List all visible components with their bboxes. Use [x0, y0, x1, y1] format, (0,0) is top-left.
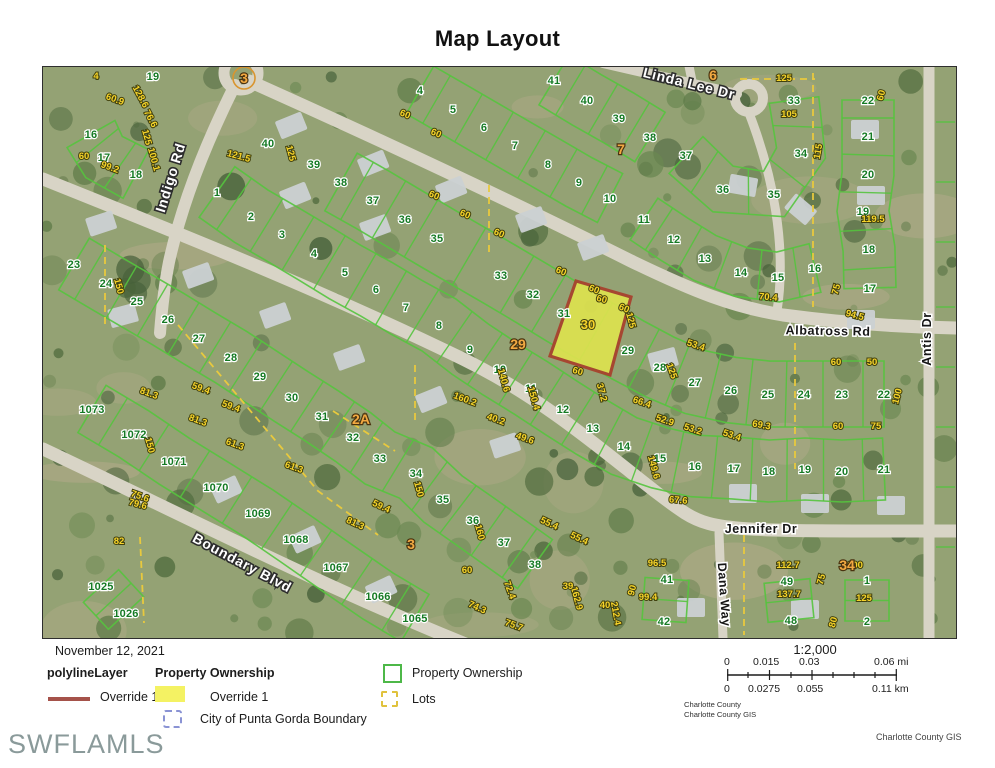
svg-text:67.6: 67.6: [669, 494, 688, 507]
scale-km-0: 0: [724, 683, 730, 695]
svg-text:35: 35: [768, 189, 781, 201]
credit-right: Charlotte County GIS: [876, 732, 962, 742]
svg-text:50: 50: [867, 357, 878, 368]
svg-text:11: 11: [638, 214, 650, 226]
svg-text:16: 16: [85, 129, 98, 141]
svg-text:2: 2: [248, 211, 254, 223]
svg-text:7: 7: [617, 141, 625, 157]
svg-text:30: 30: [286, 392, 299, 404]
svg-text:38: 38: [644, 132, 657, 144]
scale-ratio: 1:2,000: [770, 642, 860, 657]
svg-text:23: 23: [68, 259, 81, 271]
svg-text:22: 22: [862, 95, 875, 107]
svg-text:3: 3: [240, 70, 248, 86]
svg-text:34: 34: [839, 557, 855, 573]
credit-line-1: Charlotte County: [684, 700, 756, 710]
svg-text:33: 33: [788, 95, 801, 107]
svg-text:25: 25: [762, 389, 775, 401]
svg-text:12: 12: [557, 404, 570, 416]
legend-label-ownership2: Property Ownership: [412, 666, 522, 680]
svg-text:70.4: 70.4: [759, 291, 779, 304]
svg-text:2: 2: [864, 616, 870, 628]
svg-text:18: 18: [863, 244, 876, 256]
svg-text:26: 26: [725, 385, 738, 397]
legend-label-override1-line: Override 1: [100, 690, 158, 704]
svg-text:7: 7: [403, 302, 409, 314]
page-title: Map Layout: [0, 26, 995, 52]
svg-text:8: 8: [436, 320, 442, 332]
svg-text:39: 39: [563, 581, 574, 592]
svg-text:41: 41: [661, 574, 674, 586]
svg-text:1: 1: [214, 187, 220, 199]
svg-text:12: 12: [668, 234, 681, 246]
svg-text:8: 8: [545, 159, 551, 171]
svg-text:Albatross Rd: Albatross Rd: [785, 323, 870, 338]
svg-text:49: 49: [781, 576, 794, 588]
svg-text:137.7: 137.7: [777, 589, 801, 600]
svg-text:37: 37: [680, 150, 693, 162]
svg-text:40: 40: [600, 600, 611, 611]
svg-text:13: 13: [699, 253, 712, 265]
svg-text:6: 6: [373, 284, 379, 296]
svg-text:96.5: 96.5: [648, 558, 667, 569]
svg-text:42: 42: [658, 616, 671, 628]
svg-text:33: 33: [495, 270, 508, 282]
svg-text:27: 27: [193, 333, 206, 345]
svg-text:6: 6: [481, 122, 487, 134]
scale-mi-2: 0.03: [799, 656, 819, 668]
svg-text:1070: 1070: [203, 482, 228, 494]
map-layout-page: Map Layout 30414039384567891038373635333…: [0, 0, 995, 768]
svg-text:26: 26: [162, 314, 175, 326]
override1-line-icon: [48, 697, 90, 701]
svg-text:75: 75: [871, 421, 882, 432]
city-boundary-icon: [163, 710, 182, 728]
svg-text:19: 19: [147, 71, 160, 83]
svg-text:32: 32: [347, 432, 360, 444]
svg-text:29: 29: [510, 336, 526, 352]
svg-text:1067: 1067: [323, 562, 348, 574]
scale-mi-0: 0: [724, 656, 730, 668]
svg-text:125: 125: [856, 593, 873, 604]
svg-text:1026: 1026: [113, 608, 138, 620]
property-ownership-icon: [383, 664, 402, 683]
scale-mi-1: 0.015: [753, 656, 779, 668]
map-date: November 12, 2021: [55, 644, 165, 658]
svg-text:4: 4: [93, 71, 99, 82]
svg-text:38: 38: [335, 177, 348, 189]
svg-text:1025: 1025: [88, 581, 113, 593]
svg-text:5: 5: [450, 104, 456, 116]
svg-text:105: 105: [781, 109, 798, 120]
svg-text:38: 38: [529, 559, 542, 571]
svg-text:28: 28: [225, 352, 238, 364]
svg-text:48: 48: [785, 615, 798, 627]
svg-text:60: 60: [462, 565, 473, 576]
svg-text:32: 32: [527, 289, 540, 301]
watermark: SWFLAMLS: [8, 729, 165, 760]
svg-text:20: 20: [836, 466, 849, 478]
svg-text:22: 22: [878, 389, 891, 401]
svg-text:60: 60: [79, 151, 90, 162]
svg-text:41: 41: [548, 75, 561, 87]
override1-fill-icon: [155, 686, 185, 702]
legend-label-lots: Lots: [412, 692, 436, 706]
map-credits: Charlotte County Charlotte County GIS: [684, 700, 756, 720]
svg-text:1073: 1073: [79, 404, 104, 416]
svg-text:17: 17: [864, 283, 877, 295]
svg-text:39: 39: [613, 113, 626, 125]
svg-text:18: 18: [130, 169, 143, 181]
svg-text:5: 5: [342, 267, 348, 279]
scale-km-3: 0.11 km: [872, 683, 909, 695]
svg-text:2A: 2A: [352, 411, 370, 427]
svg-text:39: 39: [308, 159, 321, 171]
legend-label-override1-fill: Override 1: [210, 690, 268, 704]
scale-km-1: 0.0275: [748, 683, 780, 695]
svg-text:1: 1: [864, 575, 870, 587]
svg-text:9: 9: [467, 344, 473, 356]
svg-text:13: 13: [587, 423, 600, 435]
map-canvas[interactable]: 3041403938456789103837363533323129282726…: [42, 66, 957, 639]
legend-label-city-boundary: City of Punta Gorda Boundary: [200, 712, 367, 726]
svg-text:20: 20: [862, 169, 875, 181]
svg-text:36: 36: [717, 184, 730, 196]
svg-text:16: 16: [809, 263, 822, 275]
svg-text:23: 23: [836, 389, 849, 401]
svg-text:1071: 1071: [161, 456, 186, 468]
scale-km-2: 0.055: [797, 683, 823, 695]
svg-text:34: 34: [410, 468, 423, 480]
svg-text:19: 19: [799, 464, 812, 476]
svg-text:14: 14: [735, 267, 748, 279]
svg-text:60: 60: [831, 357, 842, 368]
svg-text:21: 21: [862, 131, 875, 143]
svg-text:3: 3: [279, 229, 285, 241]
svg-text:34: 34: [795, 148, 808, 160]
svg-text:60: 60: [833, 421, 844, 432]
lots-icon: [381, 691, 398, 707]
svg-text:36: 36: [399, 214, 412, 226]
svg-text:1065: 1065: [402, 613, 427, 625]
svg-text:31: 31: [316, 411, 329, 423]
svg-text:17: 17: [728, 463, 741, 475]
svg-text:7: 7: [512, 140, 518, 152]
svg-text:30: 30: [581, 317, 595, 332]
svg-text:Jennifer Dr: Jennifer Dr: [725, 522, 798, 536]
svg-text:18: 18: [763, 466, 776, 478]
svg-text:9: 9: [576, 177, 582, 189]
svg-text:119.5: 119.5: [861, 214, 885, 225]
svg-text:35: 35: [437, 494, 450, 506]
svg-text:4: 4: [311, 248, 318, 260]
svg-text:3: 3: [407, 536, 415, 552]
svg-text:99.4: 99.4: [639, 592, 658, 603]
scale-bar: [727, 669, 903, 681]
svg-text:1069: 1069: [245, 508, 270, 520]
svg-text:27: 27: [689, 377, 702, 389]
svg-text:4: 4: [417, 85, 424, 97]
svg-text:15: 15: [772, 272, 785, 284]
svg-text:37: 37: [498, 537, 511, 549]
svg-text:29: 29: [622, 345, 635, 357]
svg-text:40: 40: [262, 138, 275, 150]
svg-text:29: 29: [254, 371, 267, 383]
credit-line-2: Charlotte County GIS: [684, 710, 756, 720]
svg-text:25: 25: [131, 296, 144, 308]
svg-text:125: 125: [776, 73, 793, 84]
svg-text:14: 14: [618, 441, 631, 453]
svg-text:10: 10: [604, 193, 617, 205]
svg-text:Antis Dr: Antis Dr: [920, 312, 934, 365]
scale-mi-3: 0.06 mi: [874, 656, 908, 668]
svg-text:40: 40: [581, 95, 594, 107]
svg-text:37: 37: [367, 195, 380, 207]
legend-header-ownership: Property Ownership: [155, 666, 274, 680]
svg-text:82: 82: [114, 536, 125, 547]
legend-header-polyline: polylineLayer: [47, 666, 128, 680]
svg-text:24: 24: [798, 389, 811, 401]
svg-text:33: 33: [374, 453, 387, 465]
svg-text:112.7: 112.7: [776, 560, 799, 571]
svg-text:1066: 1066: [365, 591, 390, 603]
svg-text:1068: 1068: [283, 534, 308, 546]
svg-text:21: 21: [878, 464, 891, 476]
svg-text:31: 31: [558, 308, 571, 320]
svg-text:16: 16: [689, 461, 702, 473]
svg-text:35: 35: [431, 233, 444, 245]
